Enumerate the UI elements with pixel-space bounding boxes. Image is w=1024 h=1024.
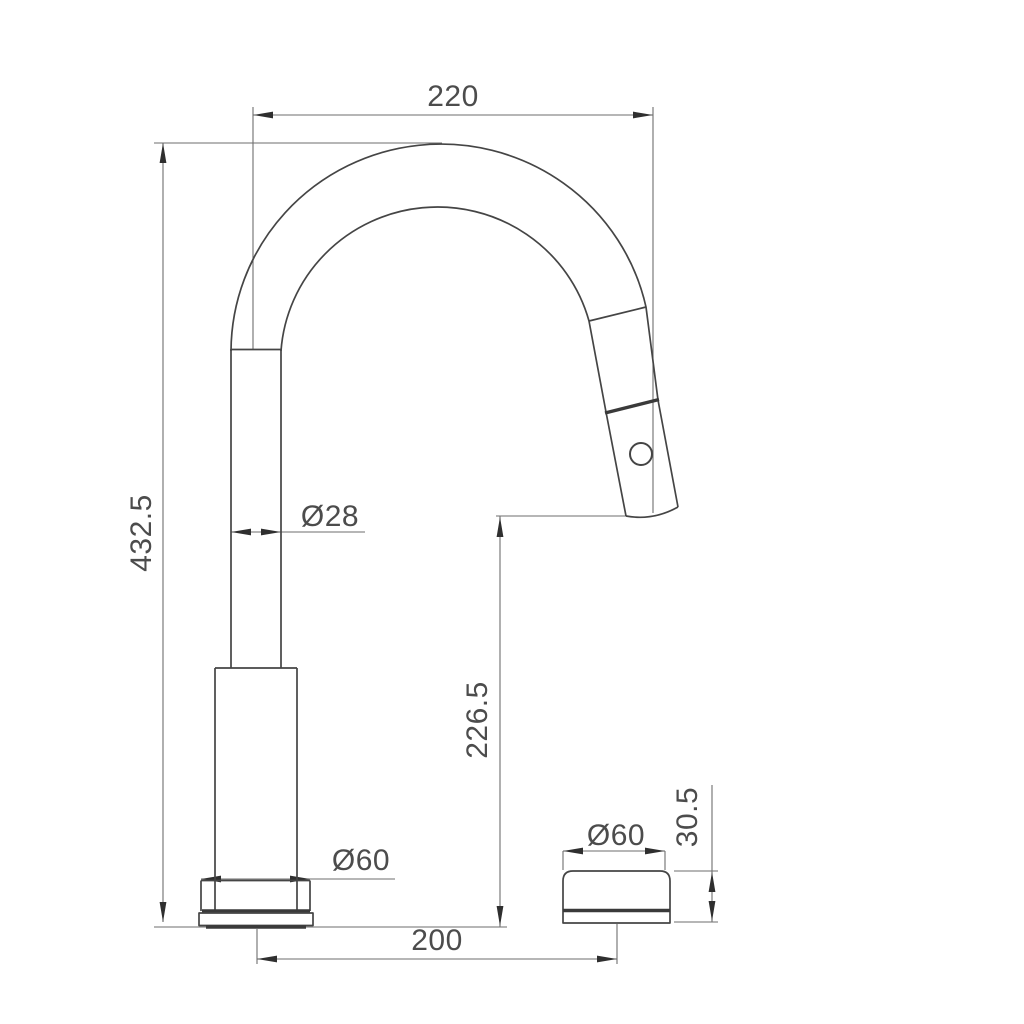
dim-overall-height: 432.5 — [125, 143, 507, 927]
arrowhead-down — [497, 906, 504, 926]
gooseneck-inner-curve — [281, 207, 626, 516]
dim-line — [253, 107, 653, 513]
dim-line — [496, 516, 627, 927]
arrowhead-right — [633, 112, 653, 119]
spray-head-outlet-edge — [626, 507, 678, 517]
base-plate — [199, 913, 313, 926]
control-knob — [563, 871, 670, 923]
arrowhead-left — [253, 112, 273, 119]
dim-label-knob-height: 30.5 — [671, 787, 704, 847]
dim-knob-height: 30.5 — [671, 785, 718, 922]
arrowhead-left — [201, 876, 221, 883]
arrowhead-left — [257, 956, 277, 963]
arrowhead-left — [563, 848, 583, 855]
arrowhead-right — [645, 848, 665, 855]
spray-head-collar — [605, 400, 659, 414]
arrowhead-down — [709, 901, 716, 921]
body-column — [215, 668, 297, 911]
knob-cap — [563, 871, 670, 912]
arrowhead-right — [290, 876, 310, 883]
technical-drawing: 220 432.5 Ø28 226.5 Ø60 — [0, 0, 1024, 1024]
arrowhead-up — [160, 143, 167, 163]
dim-spout-tube-diameter: Ø28 — [231, 500, 365, 535]
arrowhead-right — [261, 529, 281, 536]
dim-knob-diameter: Ø60 — [563, 819, 665, 870]
dim-label-spout-tube-diameter: Ø28 — [301, 500, 359, 533]
knob-base-band — [563, 912, 670, 923]
dim-outlet-height: 226.5 — [461, 516, 627, 927]
dim-label-outlet-height: 226.5 — [461, 681, 494, 759]
arrowhead-down — [160, 902, 167, 922]
dim-label-overall-height: 432.5 — [125, 494, 158, 572]
gooseneck-outer-curve — [231, 144, 678, 507]
spray-head-button — [630, 443, 652, 465]
dim-label-spout-reach: 220 — [427, 80, 479, 113]
drawing-page: 220 432.5 Ø28 226.5 Ø60 — [0, 0, 1024, 1024]
faucet-body — [199, 144, 678, 927]
dim-line — [563, 851, 665, 870]
dim-line — [154, 143, 507, 927]
arrowhead-left — [231, 529, 251, 536]
base-flange — [201, 881, 310, 912]
dim-centre-distance: 200 — [257, 924, 617, 964]
arrowhead-right — [597, 956, 617, 963]
spout-joint-line — [589, 307, 646, 321]
arrowhead-up — [497, 517, 504, 537]
dim-label-centre-distance: 200 — [411, 924, 463, 957]
riser-tube — [231, 349, 281, 668]
dim-base-diameter: Ø60 — [201, 844, 395, 882]
dim-label-base-diameter: Ø60 — [332, 844, 390, 877]
arrowhead-up — [709, 872, 716, 892]
dim-label-knob-diameter: Ø60 — [587, 819, 645, 852]
